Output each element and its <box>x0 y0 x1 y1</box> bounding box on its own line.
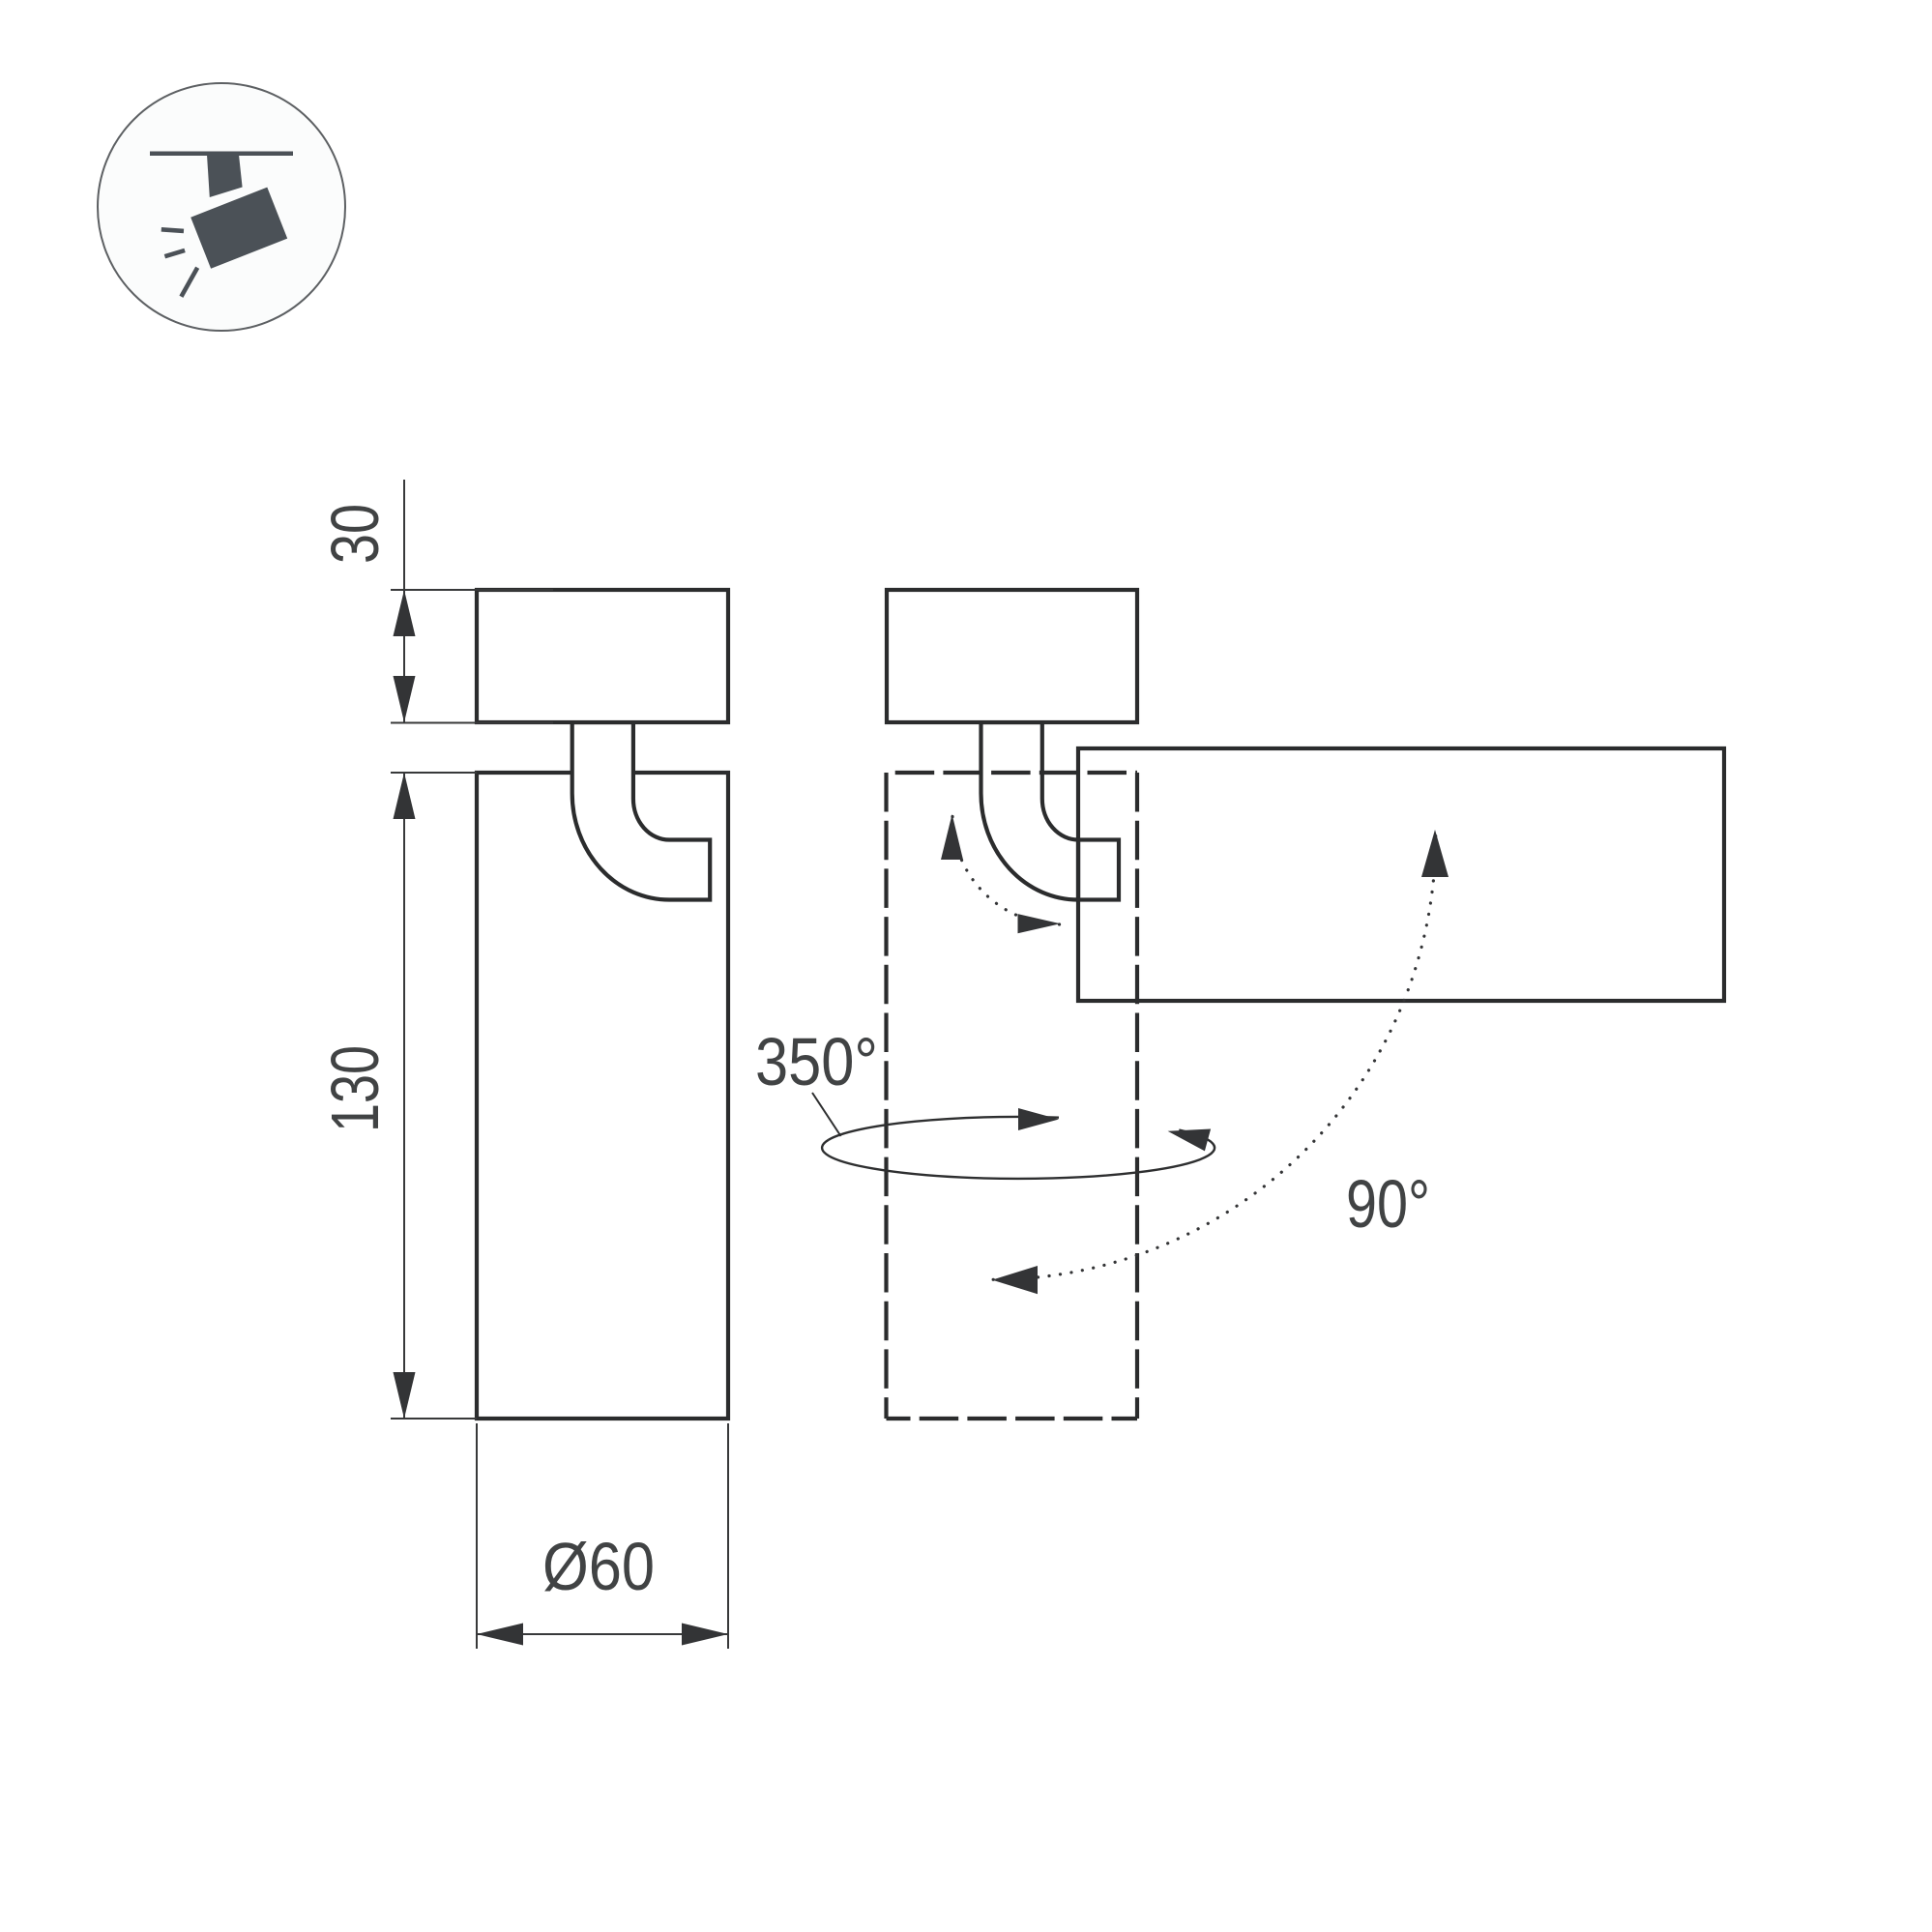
svg-text:30: 30 <box>317 504 393 564</box>
svg-text:90°: 90° <box>1346 1166 1430 1242</box>
svg-text:350°: 350° <box>755 1024 878 1099</box>
svg-text:130: 130 <box>317 1045 393 1132</box>
svg-text:Ø60: Ø60 <box>542 1529 655 1604</box>
